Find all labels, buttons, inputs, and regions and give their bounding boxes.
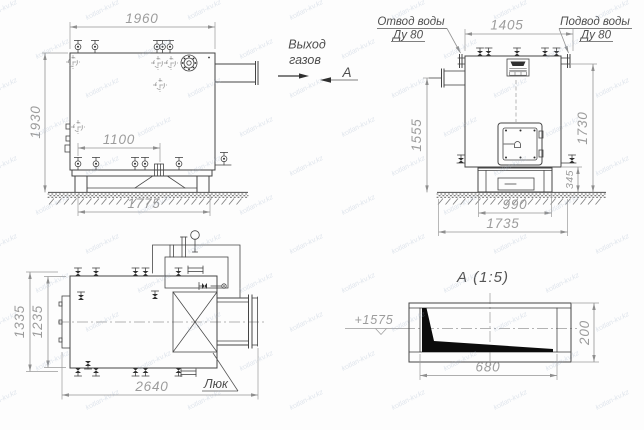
- watermark-text: kotlan-kv.kz: [239, 116, 275, 139]
- watermark-text: kotlan-kv.kz: [341, 116, 377, 139]
- base-front: [478, 168, 552, 192]
- watermark-text: kotlan-kv.kz: [187, 389, 223, 412]
- dim-text-1735: 1735: [486, 216, 519, 231]
- wedge-profile: [422, 308, 553, 352]
- watermark-text: kotlan-kv.kz: [443, 116, 479, 139]
- watermark-text: kotlan-kv.kz: [239, 38, 275, 61]
- side-brackets: [65, 124, 70, 152]
- door-latch-icon: [515, 142, 521, 148]
- watermark-text: kotlan-kv.kz: [289, 77, 325, 100]
- watermark-text: kotlan-kv.kz: [595, 233, 631, 256]
- watermark-text: kotlan-kv.kz: [341, 350, 377, 373]
- watermark-text: kotlan-kv.kz: [391, 389, 427, 412]
- water-outlet-line1: Отвод воды: [377, 16, 445, 28]
- boiler-body-front: [465, 56, 561, 167]
- dim-1730: [591, 64, 594, 192]
- valve-icon: [74, 41, 81, 54]
- water-outlet-pipe: [458, 55, 465, 68]
- watermark-text: kotlan-kv.kz: [443, 350, 479, 373]
- watermark-text: kotlan-kv.kz: [35, 350, 71, 373]
- watermark-text: kotlan-kv.kz: [595, 389, 631, 412]
- watermark-text: kotlan-kv.kz: [187, 155, 223, 178]
- flange-fitting-bottom: [181, 369, 196, 377]
- watermark-text: kotlan-kv.kz: [0, 155, 19, 178]
- watermark-text: kotlan-kv.kz: [289, 0, 325, 22]
- valve-icon: [477, 48, 484, 56]
- watermark-text: kotlan-kv.kz: [0, 0, 19, 22]
- valve-icon: [93, 368, 100, 376]
- watermark-text: kotlan-kv.kz: [137, 116, 173, 139]
- watermark-text: kotlan-kv.kz: [289, 233, 325, 256]
- watermark-text: kotlan-kv.kz: [0, 389, 19, 412]
- flow-arrow-icon: [278, 73, 309, 78]
- front-view: Отвод воды Ду 80 Подвод воды Ду 80 1405 …: [377, 16, 632, 236]
- hatch-label: Люк: [202, 353, 238, 391]
- plan-view: Люк 1335 1235 2640: [12, 231, 264, 400]
- valve-icon: [75, 368, 82, 376]
- valve-icon: [132, 268, 139, 276]
- valve-icon: [141, 158, 148, 171]
- hatch-label-text: Люк: [203, 377, 229, 391]
- dim-text-345: 345: [564, 170, 576, 189]
- dim-1555: [425, 78, 428, 192]
- watermark-text: kotlan-kv.kz: [341, 38, 377, 61]
- drain-valve-front-right: [561, 155, 576, 163]
- watermark-text: kotlan-kv.kz: [289, 155, 325, 178]
- valve-icon: [152, 291, 159, 299]
- watermark-text: kotlan-kv.kz: [239, 272, 275, 295]
- valve-icon: [91, 41, 98, 54]
- watermark-text: kotlan-kv.kz: [341, 272, 377, 295]
- watermark-text: kotlan-kv.kz: [137, 38, 173, 61]
- boiler-body-side: [70, 53, 215, 170]
- dim-text-1960: 1960: [125, 11, 158, 26]
- dim-1405: [465, 32, 573, 35]
- valve-icon: [131, 158, 138, 171]
- watermark-text: kotlan-kv.kz: [595, 155, 631, 178]
- drain-valve-front-left: [457, 155, 465, 163]
- watermark-text: kotlan-kv.kz: [187, 0, 223, 22]
- watermark-text: kotlan-kv.kz: [493, 77, 529, 100]
- watermark-text: kotlan-kv.kz: [595, 77, 631, 100]
- section-view-arrow: А: [320, 65, 358, 83]
- valve-icon: [142, 268, 149, 276]
- watermark-text: kotlan-kv.kz: [391, 155, 427, 178]
- dim-345: [576, 167, 579, 192]
- side-valve-plan: [199, 283, 226, 290]
- watermark-text: kotlan-kv.kz: [545, 350, 581, 373]
- gas-outlet-line1: Выход: [288, 38, 326, 52]
- water-inlet-line2: Ду 80: [579, 30, 612, 42]
- watermark-text: kotlan-kv.kz: [85, 233, 121, 256]
- watermark-text: kotlan-kv.kz: [85, 389, 121, 412]
- dim-text-1555: 1555: [409, 118, 424, 151]
- dim-1930: [43, 53, 46, 192]
- watermark-text: kotlan-kv.kz: [239, 194, 275, 217]
- watermark-text: kotlan-kv.kz: [85, 77, 121, 100]
- dim-text-680: 680: [476, 360, 501, 375]
- watermark-text: kotlan-kv.kz: [443, 38, 479, 61]
- watermark-text: kotlan-kv.kz: [35, 38, 71, 61]
- gas-outlet-line2: газов: [289, 53, 321, 67]
- watermark-text: kotlan-kv.kz: [289, 389, 325, 412]
- level-icon: [376, 329, 387, 335]
- section-letter: А: [341, 65, 351, 80]
- watermark-text: kotlan-kv.kz: [493, 311, 529, 334]
- gas-outlet-label: Выход газов: [278, 38, 326, 79]
- water-inlet-pipe: [561, 55, 570, 68]
- pipe-assembly-plan: [153, 231, 241, 297]
- watermark-text: kotlan-kv.kz: [35, 272, 71, 295]
- watermark-text: kotlan-kv.kz: [341, 194, 377, 217]
- valve-icon: [78, 292, 85, 300]
- watermark-text: kotlan-kv.kz: [493, 389, 529, 412]
- watermark-text: kotlan-kv.kz: [0, 233, 19, 256]
- watermark-text: kotlan-kv.kz: [85, 0, 121, 22]
- watermark-text: kotlan-kv.kz: [391, 77, 427, 100]
- valve-icon: [75, 268, 82, 276]
- gas-duct-side: [215, 62, 258, 85]
- drawing-sheet: 1960 1930 1100 1775 Выход газов А: [0, 0, 644, 430]
- watermark-text: kotlan-kv.kz: [137, 350, 173, 373]
- dim-text-1335: 1335: [12, 305, 27, 338]
- watermark-text: kotlan-kv.kz: [0, 77, 19, 100]
- watermark-text: kotlan-kv.kz: [595, 311, 631, 334]
- dim-text-990: 990: [503, 197, 528, 212]
- elevation-text: +1575: [354, 313, 393, 327]
- valve-icon: [175, 158, 182, 171]
- water-outlet-label: Отвод воды Ду 80: [377, 16, 461, 53]
- water-outlet-line2: Ду 80: [391, 30, 424, 42]
- dim-text-2640: 2640: [134, 379, 168, 394]
- mark-dot: [208, 57, 210, 59]
- watermark-text: kotlan-kv.kz: [545, 272, 581, 295]
- valve-icon: [74, 158, 81, 171]
- dim-200: [592, 303, 595, 362]
- nameplate: [507, 59, 529, 76]
- valve-icon: [485, 48, 492, 56]
- gas-duct-plan: [217, 295, 258, 348]
- dim-text-200: 200: [577, 320, 592, 346]
- watermark-text: kotlan-kv.kz: [493, 233, 529, 256]
- sight-port-icon: [181, 55, 197, 71]
- side-pipe-front: [429, 69, 465, 87]
- watermark-text: kotlan-kv.kz: [239, 350, 275, 373]
- watermark-text: kotlan-kv.kz: [391, 233, 427, 256]
- valve-icon: [514, 48, 521, 56]
- dim-text-1235: 1235: [30, 305, 45, 338]
- watermark-text: kotlan-kv.kz: [85, 155, 121, 178]
- dim-text-1100: 1100: [103, 132, 135, 147]
- valve-icon: [175, 268, 182, 276]
- flange-fitting-top: [188, 266, 203, 274]
- watermark-text: kotlan-kv.kz: [289, 311, 325, 334]
- boiler-drawing: 1960 1930 1100 1775 Выход газов А: [0, 0, 644, 430]
- watermark-text: kotlan-kv.kz: [545, 38, 581, 61]
- valve-icon: [93, 268, 100, 276]
- watermark-text: kotlan-kv.kz: [187, 233, 223, 256]
- watermark-text: kotlan-kv.kz: [187, 77, 223, 100]
- vent-icon: [191, 231, 200, 240]
